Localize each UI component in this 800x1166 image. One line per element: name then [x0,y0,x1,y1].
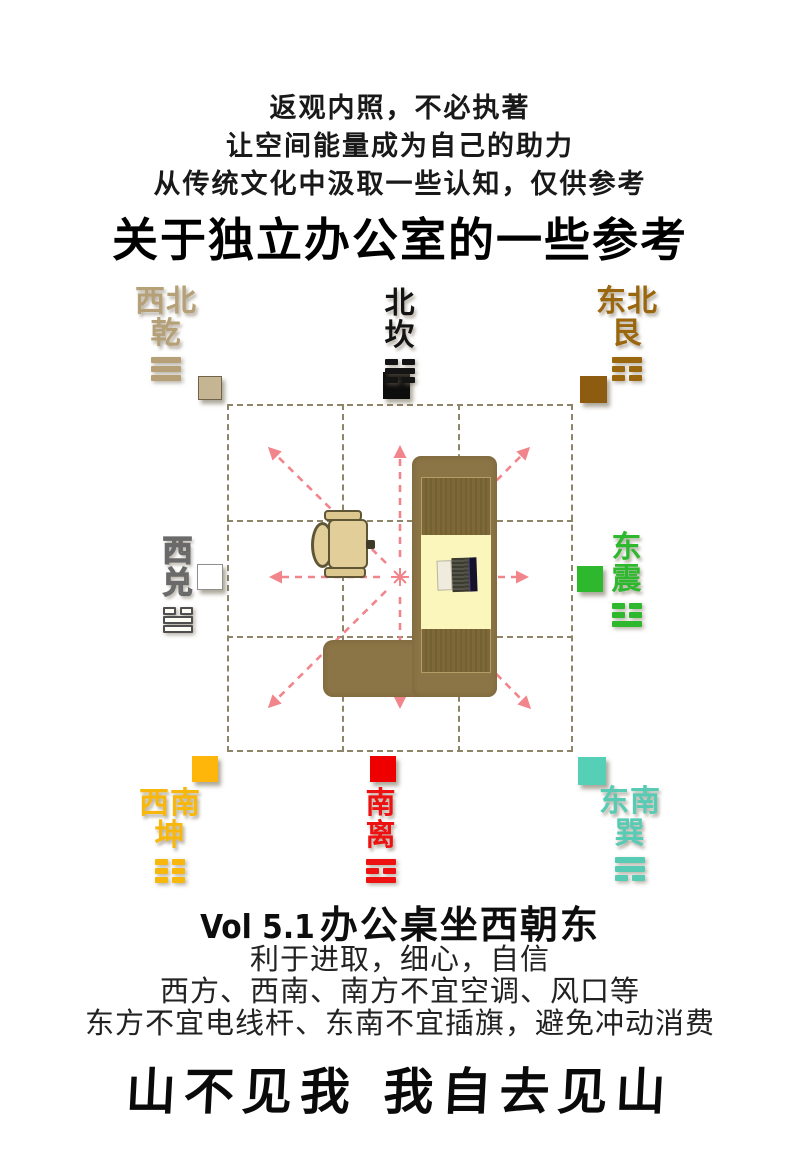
header-line-1: 返观内照，不必执著 [0,86,800,125]
east-zhen-square [577,566,603,592]
north-kan-trigram-icon [385,356,415,383]
nine-palace-grid [227,404,573,752]
north-kan-square [383,372,410,399]
page-title: 关于独立办公室的一些参考 [0,204,800,270]
laptop-icon [436,557,477,592]
south-li-trigram-icon [366,856,396,883]
east-zhen-trigram-icon [612,600,642,627]
southeast-xun-label: 东南巽 [570,786,690,885]
south-li-square [370,756,396,782]
laptop-screen [468,557,477,591]
northeast-gen-square [580,376,607,403]
grid-horizontal-line-1 [227,520,573,522]
northwest-qian-square [198,376,222,400]
west-dui-square [197,564,223,590]
southeast-xun-trigram-icon [615,854,645,881]
northwest-qian-label: 西北乾 [106,286,226,385]
fengshui-office-poster: 返观内照，不必执著 让空间能量成为自己的助力 从传统文化中汲取一些认知，仅供参考… [0,0,800,1166]
north-kan-label: 北坎 [340,288,460,387]
northeast-gen-trigram-icon [612,354,642,381]
southwest-kun-square [192,756,218,782]
northwest-qian-trigram-icon [151,354,181,381]
east-zhen-label: 东震 [567,532,687,631]
west-dui-trigram-icon [163,604,193,631]
chair-adjust-knob [366,540,375,549]
southeast-xun-square [578,757,606,785]
laptop-base [436,560,452,591]
office-chair-icon [308,510,378,580]
l-shaped-desk-icon [412,456,497,697]
header-line-3: 从传统文化中汲取一些认知，仅供参考 [0,162,800,201]
southwest-kun-label: 西南坤 [110,788,230,887]
southwest-kun-trigram-icon [155,856,185,883]
south-li-label: 南离 [321,788,441,887]
laptop-keyboard [451,558,469,593]
header-line-2: 让空间能量成为自己的助力 [0,124,800,163]
calligraphy-motto: 山不见我 我自去见山 [0,1052,800,1124]
west-dui-label: 西兑 [118,536,238,637]
grid-horizontal-line-2 [227,636,573,638]
northeast-gen-label: 东北艮 [567,286,687,385]
chair-seat [328,519,368,569]
advice-line-3: 东方不宜电线杆、东南不宜插旗，避免冲动消费 [0,1000,800,1042]
